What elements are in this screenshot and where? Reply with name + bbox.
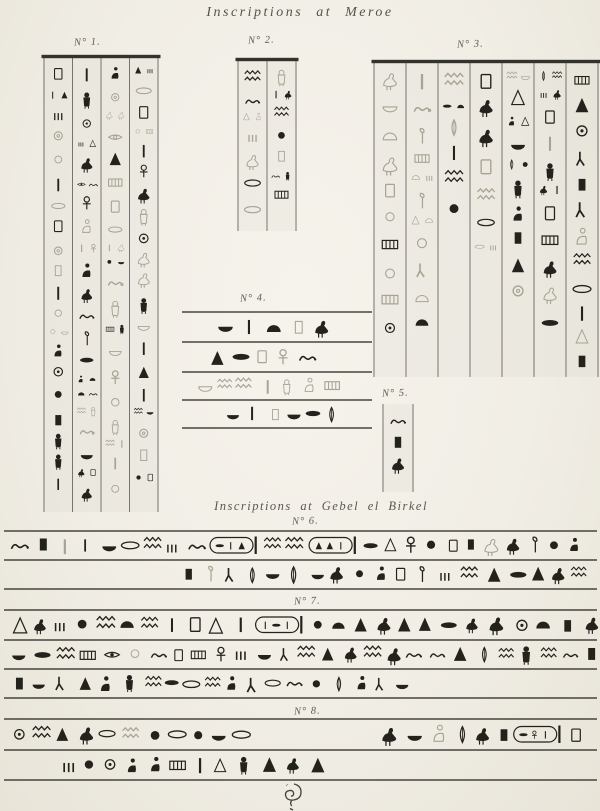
hieroglyph-texture-svg [4,719,597,780]
inscription-columns-no3 [374,63,598,377]
inscription-rows-no4 [182,312,372,428]
plate-page: Inscriptions at Meroe N° 1. N° 2. N° 3. … [0,0,600,811]
flourish-svg [276,782,310,811]
inscription-column-no5 [383,404,413,492]
inscription-band-no6 [4,531,597,589]
hieroglyph-texture-svg [182,312,372,428]
hieroglyph-texture-svg [4,610,597,698]
inscription-band-no7 [4,610,597,698]
hieroglyph-texture-svg [383,404,413,492]
hieroglyph-texture-svg [44,58,158,512]
hieroglyph-texture-svg [374,63,598,377]
inscription-columns-no2 [238,61,296,231]
label-no1: N° 1. [74,37,101,49]
label-no5: N° 5. [382,388,409,400]
page-title: Inscriptions at Meroe [0,5,600,21]
hieroglyph-texture-svg [238,61,296,231]
label-no3: N° 3. [457,39,484,51]
hieroglyph-texture-svg [4,531,597,589]
label-no8: N° 8. [294,706,321,718]
engraver-flourish-mark [276,782,310,811]
inscription-columns-no1 [44,58,158,512]
label-no7: N° 7. [294,596,321,608]
inscription-band-no8 [4,719,597,780]
label-no2: N° 2. [248,35,275,47]
label-no4: N° 4. [240,293,267,305]
label-no6: N° 6. [292,516,319,528]
